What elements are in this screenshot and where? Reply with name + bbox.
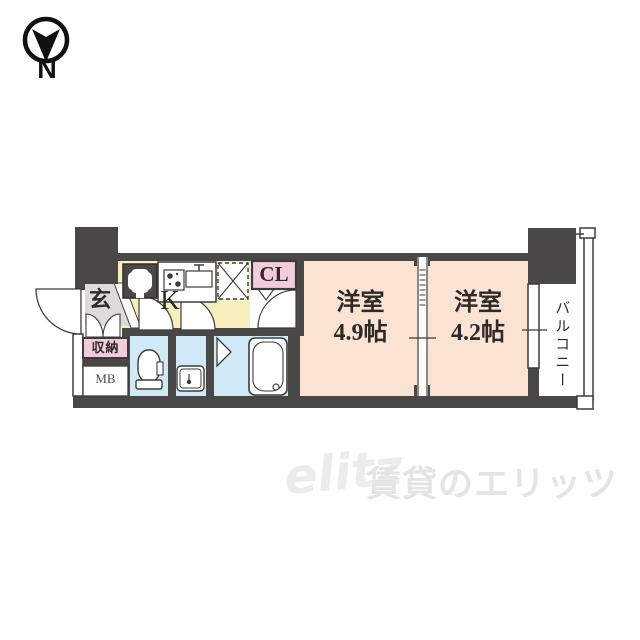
balcony-rail-cap-bottom — [577, 396, 593, 409]
sink-icon — [186, 271, 212, 287]
gas-burner-dot-3 — [176, 273, 178, 275]
entrance-door-arc — [36, 289, 81, 334]
closet-label: CL — [252, 263, 296, 286]
meter-box-label: MB — [83, 372, 128, 386]
stove-burner-h — [128, 272, 152, 290]
watermark-brand-text: 賃貸のエリッツ — [366, 456, 618, 507]
western-room-1-size: 4.9帖 — [304, 318, 417, 348]
balcony-rail — [584, 232, 593, 400]
western-room-2-label: 洋室 4.2帖 — [428, 288, 528, 348]
western-room-1-name: 洋室 — [304, 288, 417, 318]
western-room-2-name: 洋室 — [428, 288, 528, 318]
wall-below-window — [528, 368, 539, 396]
kitchen-label: K — [150, 286, 190, 316]
wall-bath-right — [288, 336, 300, 396]
wall-top-right-block — [528, 228, 576, 284]
balcony-label: バルコニー — [546, 286, 576, 404]
western-room-2-size: 4.2帖 — [428, 318, 528, 348]
gas-burner-dot-1 — [167, 273, 173, 279]
wall-bottom — [83, 396, 577, 408]
storage-label: 収納 — [83, 341, 128, 355]
stove-grill — [136, 292, 144, 298]
wall-toilet-washroom — [168, 336, 176, 396]
toilet-base — [136, 380, 162, 389]
wall-storage-mb — [83, 358, 128, 366]
balcony-window — [528, 284, 539, 368]
bathtub-inner — [253, 342, 283, 391]
outer-wall-left — [73, 334, 83, 396]
wall-washroom-bath — [206, 336, 214, 396]
wall-hall-room1 — [296, 253, 304, 332]
washbasin-bowl — [180, 369, 201, 388]
entrance-label: 玄 — [85, 288, 115, 312]
floorplan-page: N 玄 収納 MB K CL 洋室 4.9帖 洋室 4.2帖 バルコニー eli… — [0, 0, 640, 640]
bathtub-drain — [273, 384, 279, 390]
western-room-1-label: 洋室 4.9帖 — [304, 288, 417, 348]
toilet-handle — [157, 362, 163, 375]
washbasin-faucet — [187, 380, 191, 384]
wall-bottom-left-foot — [73, 396, 85, 408]
sliding-door-channel — [417, 257, 428, 396]
compass-n-label: N — [31, 55, 63, 85]
balcony-rail-cap-top — [580, 228, 595, 238]
wall-top — [108, 253, 532, 261]
